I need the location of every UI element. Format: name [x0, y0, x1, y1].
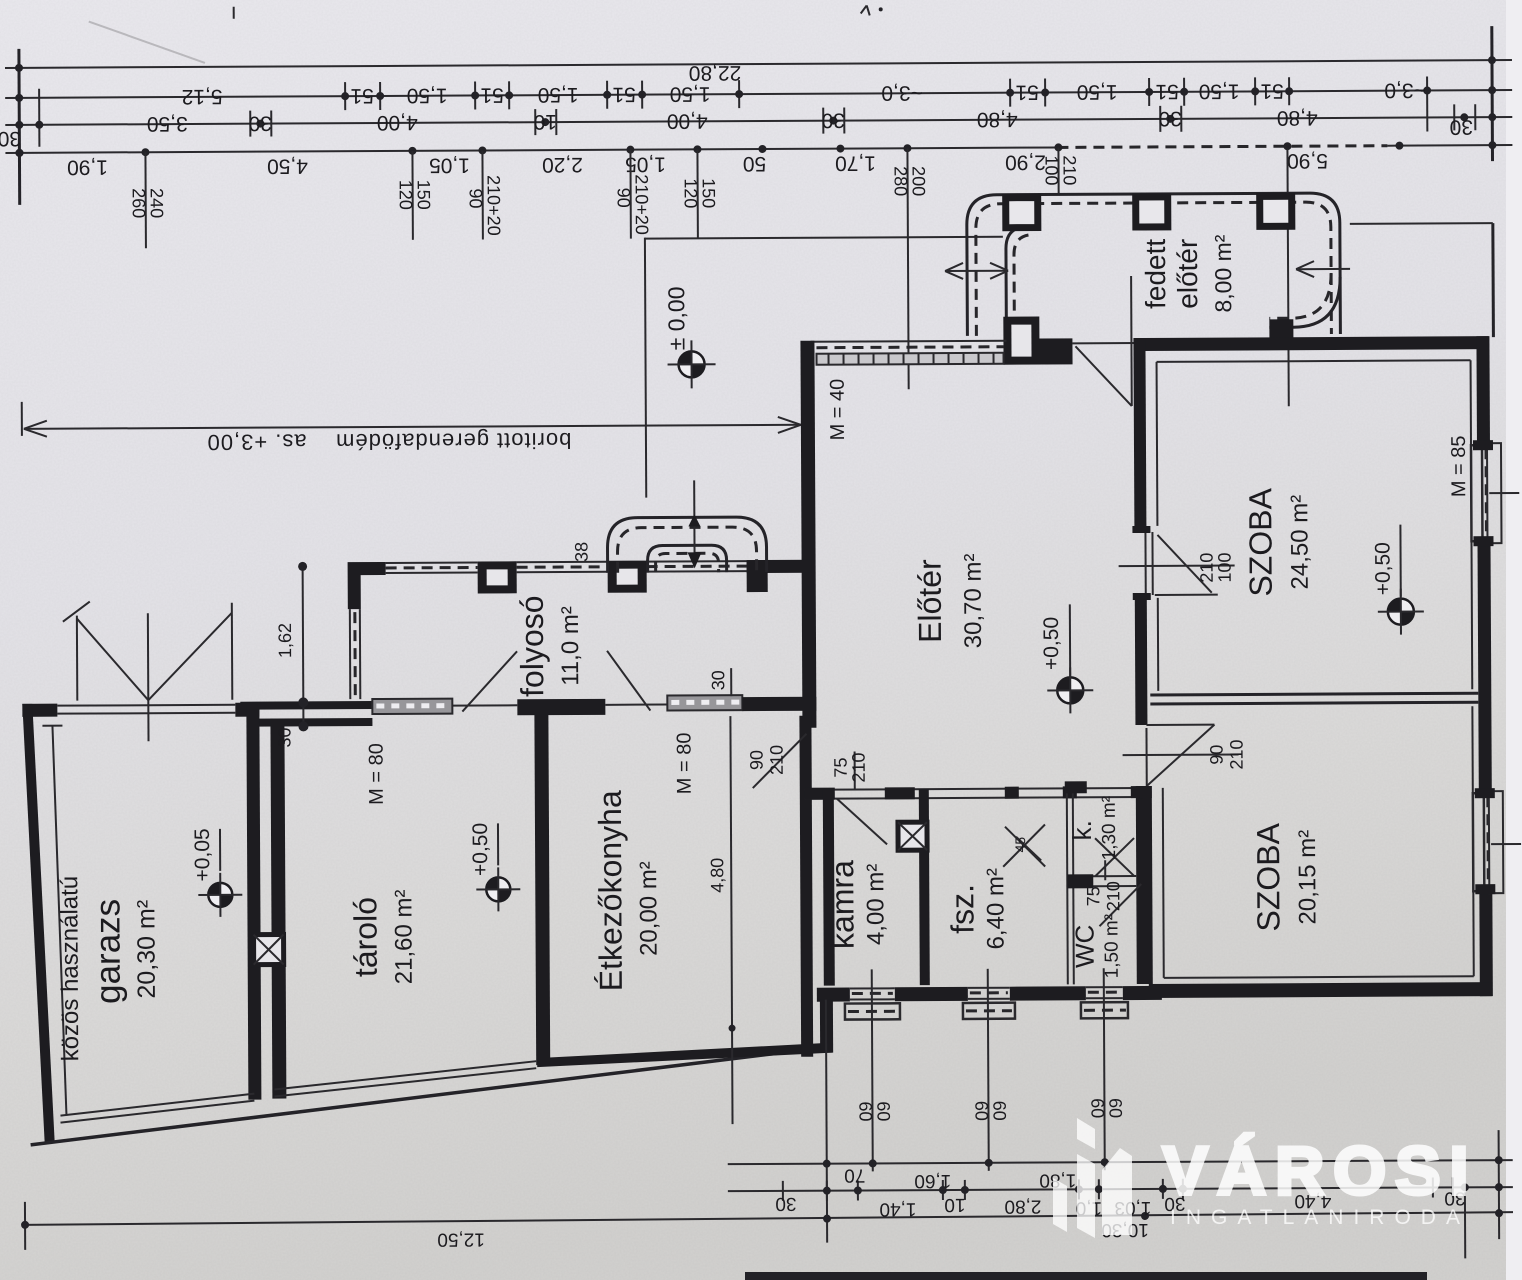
svg-text:60: 60 — [989, 1101, 1009, 1121]
svg-text:210: 210 — [767, 745, 787, 775]
svg-text:M = 80: M = 80 — [673, 732, 695, 794]
svg-text:50: 50 — [743, 152, 766, 175]
svg-text:Étkezőkonyha: Étkezőkonyha — [592, 790, 629, 991]
svg-text:M = 80: M = 80 — [366, 743, 388, 805]
svg-text:210: 210 — [849, 752, 869, 782]
svg-text:100: 100 — [1215, 552, 1235, 582]
svg-text:1,50: 1,50 — [670, 82, 711, 105]
svg-text:+0,50: +0,50 — [1371, 542, 1394, 595]
svg-text:24,50 m²: 24,50 m² — [1286, 495, 1313, 590]
svg-text:+0,50: +0,50 — [469, 823, 492, 876]
svg-text:60: 60 — [855, 1101, 875, 1121]
svg-text:51: 51 — [1015, 81, 1038, 104]
svg-text:90: 90 — [614, 188, 634, 208]
svg-text:4,80: 4,80 — [707, 858, 727, 893]
svg-text:30: 30 — [1450, 115, 1473, 138]
svg-text:+0,05: +0,05 — [191, 828, 214, 881]
svg-text:4,00 m²: 4,00 m² — [862, 864, 889, 946]
svg-text:30: 30 — [708, 670, 728, 690]
svg-text:150: 150 — [414, 180, 434, 210]
svg-text:~3,0: ~3,0 — [1384, 79, 1426, 102]
svg-text:11,0 m²: 11,0 m² — [557, 606, 584, 686]
svg-text:260: 260 — [129, 188, 149, 218]
svg-text:4,80: 4,80 — [1277, 106, 1318, 129]
svg-text:20,30 m²: 20,30 m² — [132, 900, 161, 999]
svg-text:2,80: 2,80 — [1004, 1196, 1041, 1217]
svg-text:4,50: 4,50 — [267, 154, 308, 177]
svg-text:30: 30 — [822, 109, 845, 132]
svg-text:M = 40: M = 40 — [827, 379, 849, 441]
svg-text:60: 60 — [873, 1101, 893, 1121]
svg-text:51: 51 — [480, 83, 503, 106]
svg-text:90: 90 — [1207, 745, 1227, 765]
svg-text:51: 51 — [612, 83, 635, 106]
svg-text:VÁROSI: VÁROSI — [1163, 1133, 1478, 1209]
svg-text:120: 120 — [396, 180, 416, 210]
svg-text:3,50: 3,50 — [147, 112, 188, 135]
svg-text:± 0,00: ± 0,00 — [663, 286, 689, 350]
svg-text:20,15 m²: 20,15 m² — [1294, 830, 1321, 925]
svg-text:WC: WC — [1069, 925, 1099, 968]
svg-text:51: 51 — [350, 84, 373, 107]
svg-text:30: 30 — [274, 727, 294, 747]
svg-text:fsz.: fsz. — [944, 884, 980, 934]
svg-text:90: 90 — [747, 750, 767, 770]
svg-text:10: 10 — [534, 110, 557, 133]
svg-text:1,60: 1,60 — [914, 1170, 951, 1191]
svg-text:21,60 m²: 21,60 m² — [390, 889, 417, 984]
svg-text:22,80: 22,80 — [689, 61, 742, 84]
svg-text:közös használatú: közös használatú — [56, 876, 84, 1062]
svg-text:30: 30 — [249, 112, 272, 135]
svg-text:6,40 m²: 6,40 m² — [982, 868, 1009, 950]
svg-text:1,90: 1,90 — [67, 155, 108, 178]
svg-text:k.: k. — [1067, 820, 1097, 840]
svg-text:210+20: 210+20 — [632, 174, 652, 235]
svg-text:M = 85: M = 85 — [1448, 435, 1470, 497]
svg-text:kamra: kamra — [824, 860, 860, 949]
svg-text:30: 30 — [1159, 107, 1182, 130]
svg-text:100: 100 — [1041, 155, 1061, 185]
svg-text:75: 75 — [1083, 886, 1103, 906]
svg-text:120: 120 — [681, 178, 701, 208]
svg-text:30,70 m²: 30,70 m² — [960, 553, 987, 648]
svg-text:boritott gerendafödém as. +: boritott gerendafödém as. +3,00 — [206, 428, 571, 455]
svg-text:előtér: előtér — [1172, 239, 1203, 309]
svg-text:1,50: 1,50 — [1199, 79, 1240, 102]
svg-text:150: 150 — [699, 178, 719, 208]
svg-text:20,00 m²: 20,00 m² — [635, 861, 662, 956]
svg-text:folyosó: folyosó — [514, 595, 551, 697]
svg-text:tároló: tároló — [347, 897, 383, 977]
svg-text:garazs: garazs — [88, 899, 128, 1004]
svg-text:INGATLANIRODA: INGATLANIRODA — [1170, 1206, 1470, 1229]
svg-text:5,12: 5,12 — [182, 85, 223, 108]
svg-text:4,00: 4,00 — [377, 111, 418, 134]
svg-text:30: 30 — [0, 127, 21, 150]
svg-text:1,50: 1,50 — [538, 83, 579, 106]
svg-text:8,00 m²: 8,00 m² — [1210, 234, 1236, 312]
svg-text:1,50: 1,50 — [407, 84, 448, 107]
svg-text:210+20: 210+20 — [484, 175, 504, 236]
svg-text:1,40: 1,40 — [879, 1198, 916, 1219]
svg-text:Előtér: Előtér — [912, 559, 948, 643]
svg-text:60: 60 — [971, 1101, 991, 1121]
svg-text:~3,0: ~3,0 — [881, 81, 923, 104]
svg-text:45: 45 — [1012, 837, 1028, 853]
svg-text:SZOBA: SZOBA — [1250, 822, 1287, 931]
svg-text:2,20: 2,20 — [542, 153, 583, 176]
svg-text:60: 60 — [1105, 1098, 1125, 1118]
svg-text:10: 10 — [944, 1194, 965, 1215]
svg-text:30: 30 — [775, 1193, 796, 1214]
svg-text:+0,50: +0,50 — [1040, 617, 1063, 670]
svg-text:1,05: 1,05 — [429, 154, 470, 177]
svg-text:4,00: 4,00 — [667, 109, 708, 132]
svg-text:SZOBA: SZOBA — [1242, 487, 1279, 596]
svg-text:90: 90 — [466, 188, 486, 208]
svg-text:1,50: 1,50 — [1077, 80, 1118, 103]
svg-text:60: 60 — [1087, 1098, 1107, 1118]
svg-text:210: 210 — [1059, 155, 1079, 185]
svg-text:1,30 m²: 1,30 m² — [1099, 796, 1120, 861]
svg-text:210: 210 — [1227, 739, 1247, 769]
svg-text:200: 200 — [909, 166, 929, 196]
svg-text:5,90: 5,90 — [1287, 149, 1328, 172]
svg-text:280: 280 — [891, 166, 911, 196]
svg-text:1,70: 1,70 — [835, 151, 876, 174]
svg-text:fedett: fedett — [1140, 239, 1171, 309]
svg-text:1,62: 1,62 — [275, 623, 295, 658]
svg-text:2,90: 2,90 — [1005, 151, 1046, 174]
svg-text:210: 210 — [1103, 881, 1123, 911]
svg-text:51: 51 — [1155, 80, 1178, 103]
svg-text:12,50: 12,50 — [437, 1228, 485, 1249]
svg-text:240: 240 — [147, 188, 167, 218]
svg-text:4,80: 4,80 — [977, 108, 1018, 131]
svg-text:38: 38 — [571, 542, 591, 562]
svg-text:51: 51 — [1260, 79, 1283, 102]
svg-text:70: 70 — [844, 1164, 865, 1185]
